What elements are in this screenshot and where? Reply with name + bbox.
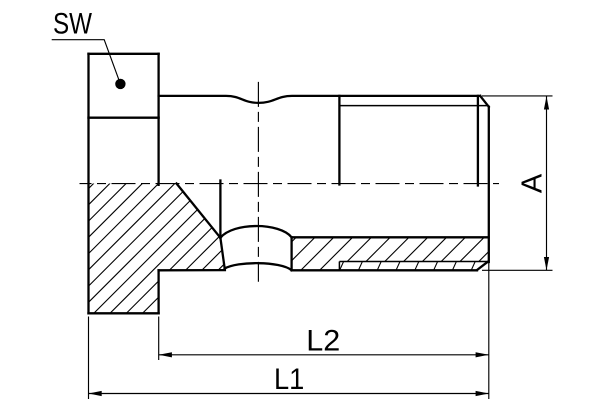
svg-text:A: A: [517, 173, 549, 193]
svg-text:L1: L1: [274, 363, 304, 396]
svg-text:SW: SW: [53, 8, 93, 41]
svg-text:L2: L2: [306, 325, 340, 358]
